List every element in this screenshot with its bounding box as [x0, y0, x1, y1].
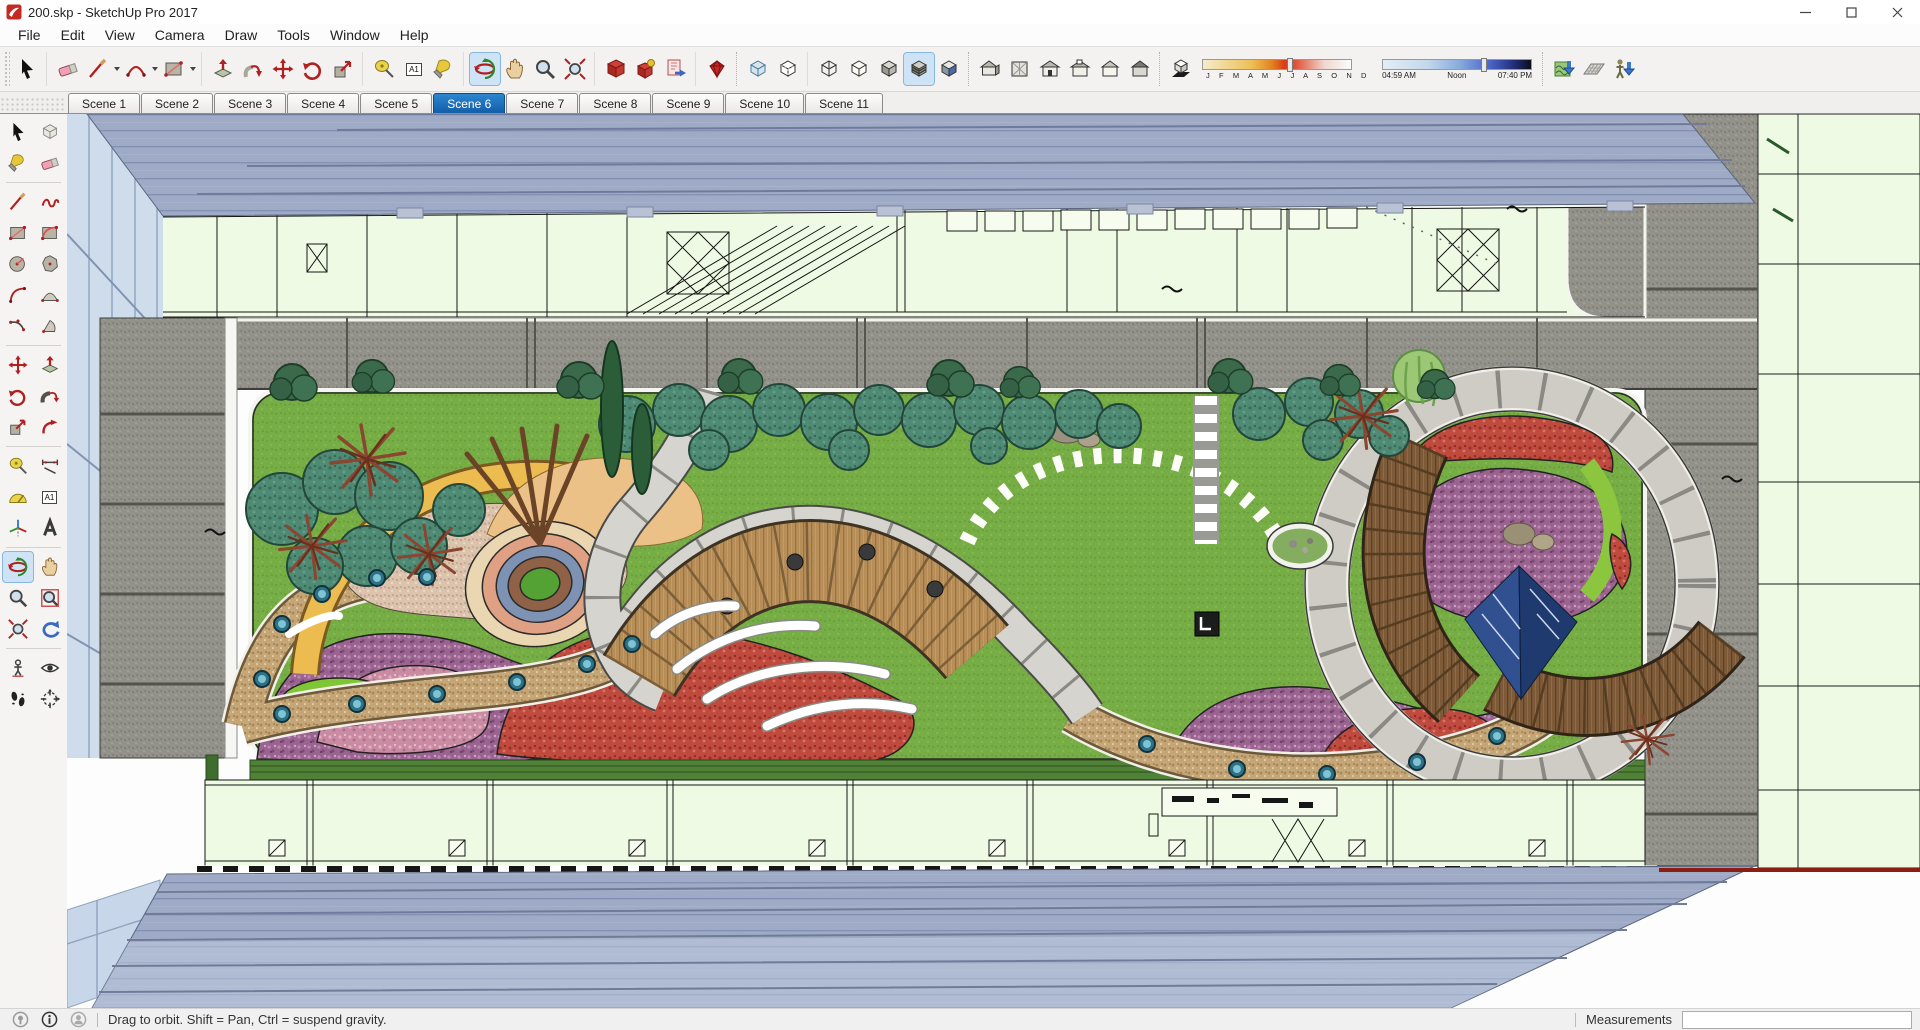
tab-scene-8[interactable]: Scene 8: [579, 93, 651, 113]
scene-bar-grip[interactable]: [0, 97, 66, 113]
close-button[interactable]: [1874, 0, 1920, 24]
follow-me-icon[interactable]: [238, 53, 268, 85]
menu-edit[interactable]: Edit: [51, 24, 95, 46]
main-toolbar: A1: [0, 46, 1920, 92]
line-tool-icon[interactable]: [83, 53, 113, 85]
style-shaded-icon[interactable]: [874, 53, 904, 85]
view-left-icon[interactable]: [1095, 53, 1125, 85]
circle-tool-icon[interactable]: [3, 249, 33, 279]
two-point-arc-tool-icon[interactable]: [35, 280, 65, 310]
extension-warehouse-icon[interactable]: [702, 53, 732, 85]
freehand-tool-icon[interactable]: [35, 187, 65, 217]
maximize-button[interactable]: [1828, 0, 1874, 24]
push-pull-tool-icon[interactable]: [35, 350, 65, 380]
style-shaded-textures-icon[interactable]: [904, 53, 934, 85]
shadow-toggle-icon[interactable]: [1166, 53, 1196, 85]
account-icon[interactable]: [70, 1011, 87, 1028]
tab-scene-6[interactable]: Scene 6: [433, 93, 505, 113]
look-around-icon[interactable]: [35, 653, 65, 683]
scale-tool-icon[interactable]: [3, 412, 33, 442]
zoom-tool-icon[interactable]: [3, 583, 33, 613]
status-hint: Drag to orbit. Shift = Pan, Ctrl = suspe…: [108, 1012, 387, 1027]
large-tool-set: A1: [0, 114, 67, 1008]
scene-tab-bar: Scene 1 Scene 2 Scene 3 Scene 4 Scene 5 …: [0, 92, 1920, 114]
zoom-extents-tool-icon[interactable]: [3, 614, 33, 644]
three-point-arc-tool-icon[interactable]: [3, 311, 33, 341]
shadow-date-slider[interactable]: J F M A M J J A S O N D: [1202, 59, 1370, 80]
axes-tool-icon[interactable]: [3, 513, 33, 543]
viewport-canvas[interactable]: [67, 114, 1920, 1008]
rotated-rectangle-tool-icon[interactable]: [35, 218, 65, 248]
eraser-icon[interactable]: [53, 53, 83, 85]
drop-icon[interactable]: [1609, 53, 1639, 85]
line-dropdown-caret[interactable]: [113, 53, 121, 85]
window-title: 200.skp - SketchUp Pro 2017: [28, 5, 198, 20]
component-icon[interactable]: [601, 53, 631, 85]
offset-tool-icon[interactable]: [35, 412, 65, 442]
position-camera-icon[interactable]: [3, 653, 33, 683]
section-plane-icon[interactable]: [35, 684, 65, 714]
info-icon[interactable]: [41, 1011, 58, 1028]
toolbar-grip[interactable]: [4, 51, 10, 87]
date-slider-months: J F M A M J J A S O N D: [1202, 71, 1370, 80]
tab-scene-9[interactable]: Scene 9: [652, 93, 724, 113]
menu-bar: File Edit View Camera Draw Tools Window …: [0, 24, 1920, 46]
sandbox-from-contours-icon[interactable]: [1549, 53, 1579, 85]
time-sunset-label: 07:40 PM: [1498, 71, 1532, 80]
measurements-value[interactable]: [1682, 1011, 1912, 1029]
tab-scene-11[interactable]: Scene 11: [805, 93, 883, 113]
tab-scene-10[interactable]: Scene 10: [725, 93, 804, 113]
move-tool-icon[interactable]: [3, 350, 33, 380]
menu-file[interactable]: File: [8, 24, 51, 46]
time-noon-label: Noon: [1447, 71, 1466, 80]
text-tool-label: A1: [406, 63, 422, 76]
text-tool-label-2: A1: [42, 491, 58, 504]
eraser-icon[interactable]: [35, 148, 65, 178]
geolocation-icon[interactable]: [12, 1011, 29, 1028]
make-component-icon[interactable]: [35, 117, 65, 147]
view-back-icon[interactable]: [1065, 53, 1095, 85]
walk-tool-icon[interactable]: [3, 684, 33, 714]
pan-tool-icon[interactable]: [35, 552, 65, 582]
pie-tool-icon[interactable]: [35, 311, 65, 341]
orbit-tool-icon[interactable]: [3, 552, 33, 582]
select-tool-icon[interactable]: [3, 117, 33, 147]
tab-scene-3[interactable]: Scene 3: [214, 93, 286, 113]
sketchup-logo-icon: [6, 4, 22, 20]
time-sunrise-label: 04:59 AM: [1382, 71, 1416, 80]
polygon-tool-icon[interactable]: [35, 249, 65, 279]
time-slider-thumb[interactable]: [1481, 58, 1487, 72]
text-tool-icon[interactable]: A1: [35, 482, 65, 512]
title-bar: 200.skp - SketchUp Pro 2017: [0, 0, 1920, 24]
menu-help[interactable]: Help: [390, 24, 439, 46]
send-to-layout-icon[interactable]: [661, 53, 691, 85]
paint-bucket-icon[interactable]: [3, 148, 33, 178]
utility-box: [1195, 612, 1219, 636]
menu-view[interactable]: View: [95, 24, 145, 46]
rotate-tool-icon[interactable]: [3, 381, 33, 411]
dimension-tool-icon[interactable]: [35, 451, 65, 481]
move-tool-icon[interactable]: [268, 53, 298, 85]
warehouse-icon[interactable]: [631, 53, 661, 85]
previous-view-icon[interactable]: [35, 614, 65, 644]
roof-north: [87, 114, 1755, 218]
view-right-icon[interactable]: [1125, 53, 1155, 85]
style-back-edges-icon[interactable]: [773, 53, 803, 85]
menu-window[interactable]: Window: [320, 24, 390, 46]
style-monochrome-icon[interactable]: [934, 53, 964, 85]
style-hidden-line-icon[interactable]: [844, 53, 874, 85]
viewport: [67, 114, 1920, 1008]
shadow-time-slider[interactable]: 04:59 AM Noon 07:40 PM: [1382, 59, 1532, 80]
tab-scene-1[interactable]: Scene 1: [68, 93, 140, 113]
menu-camera[interactable]: Camera: [145, 24, 215, 46]
paint-bucket-icon[interactable]: [429, 53, 459, 85]
view-front-icon[interactable]: [1035, 53, 1065, 85]
tab-scene-7[interactable]: Scene 7: [506, 93, 578, 113]
follow-me-tool-icon[interactable]: [35, 381, 65, 411]
paving-west: [100, 318, 237, 758]
date-slider-thumb[interactable]: [1287, 58, 1293, 72]
3d-text-tool-icon[interactable]: [35, 513, 65, 543]
menu-tools[interactable]: Tools: [267, 24, 320, 46]
style-wireframe-icon[interactable]: [814, 53, 844, 85]
zoom-window-tool-icon[interactable]: [35, 583, 65, 613]
zoom-tool-icon[interactable]: [530, 53, 560, 85]
menu-draw[interactable]: Draw: [215, 24, 268, 46]
rectangle-dropdown-caret[interactable]: [189, 53, 197, 85]
view-iso-icon[interactable]: [975, 53, 1005, 85]
measurements-label: Measurements: [1586, 1012, 1672, 1027]
tape-measure-icon[interactable]: [369, 53, 399, 85]
arc-tool-icon[interactable]: [3, 280, 33, 310]
arc-tool-icon[interactable]: [121, 53, 151, 85]
tab-scene-4[interactable]: Scene 4: [287, 93, 359, 113]
protractor-tool-icon[interactable]: [3, 482, 33, 512]
push-pull-icon[interactable]: [208, 53, 238, 85]
orbit-tool-icon[interactable]: [470, 53, 500, 85]
status-bar: Drag to orbit. Shift = Pan, Ctrl = suspe…: [0, 1008, 1920, 1030]
line-tool-icon[interactable]: [3, 187, 33, 217]
style-xray-icon[interactable]: [743, 53, 773, 85]
rectangle-tool-icon[interactable]: [3, 218, 33, 248]
scale-tool-icon[interactable]: [328, 53, 358, 85]
tab-scene-5[interactable]: Scene 5: [360, 93, 432, 113]
view-top-icon[interactable]: [1005, 53, 1035, 85]
building-east: [1758, 114, 1920, 868]
rectangle-tool-icon[interactable]: [159, 53, 189, 85]
pan-tool-icon[interactable]: [500, 53, 530, 85]
tape-measure-icon[interactable]: [3, 451, 33, 481]
tab-scene-2[interactable]: Scene 2: [141, 93, 213, 113]
select-tool-icon[interactable]: [12, 53, 42, 85]
sandbox-from-scratch-icon[interactable]: [1579, 53, 1609, 85]
text-tool-icon[interactable]: A1: [399, 53, 429, 85]
arc-dropdown-caret[interactable]: [151, 53, 159, 85]
rotate-tool-icon[interactable]: [298, 53, 328, 85]
minimize-button[interactable]: [1782, 0, 1828, 24]
zoom-extents-icon[interactable]: [560, 53, 590, 85]
